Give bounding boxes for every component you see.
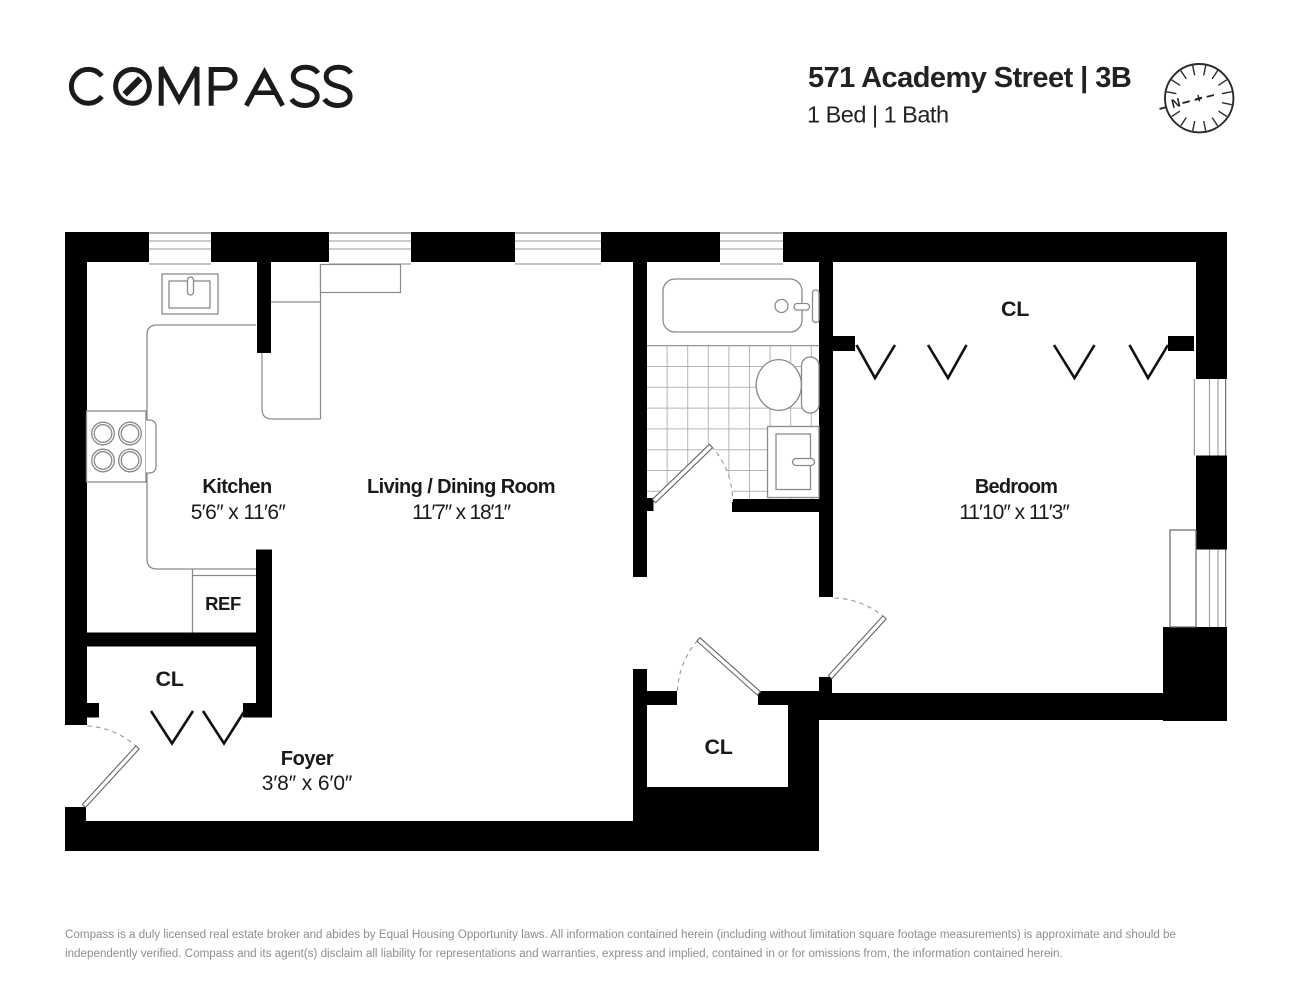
svg-text:Living / Dining Room: Living / Dining Room bbox=[367, 476, 555, 498]
svg-text:CL: CL bbox=[155, 667, 183, 691]
svg-text:Bedroom: Bedroom bbox=[975, 476, 1057, 498]
svg-text:3′8″ x 6′0″: 3′8″ x 6′0″ bbox=[262, 772, 353, 795]
svg-text:5′6″ x 11′6″: 5′6″ x 11′6″ bbox=[191, 501, 287, 524]
svg-text:1 Bed | 1 Bath: 1 Bed | 1 Bath bbox=[807, 102, 949, 128]
svg-text:571 Academy Street | 3B: 571 Academy Street | 3B bbox=[808, 62, 1131, 94]
svg-text:Foyer: Foyer bbox=[281, 748, 334, 770]
svg-text:11′7″ x 18′1″: 11′7″ x 18′1″ bbox=[412, 501, 512, 524]
svg-text:CL: CL bbox=[1001, 297, 1029, 321]
svg-text:CL: CL bbox=[704, 735, 732, 759]
svg-text:Compass is a duly licensed rea: Compass is a duly licensed real estate b… bbox=[65, 928, 1176, 941]
svg-text:REF: REF bbox=[205, 593, 241, 614]
svg-text:11′10″ x 11′3″: 11′10″ x 11′3″ bbox=[959, 501, 1070, 524]
svg-text:Kitchen: Kitchen bbox=[202, 476, 271, 498]
svg-text:independently verified. Compas: independently verified. Compass and its … bbox=[65, 947, 1063, 960]
